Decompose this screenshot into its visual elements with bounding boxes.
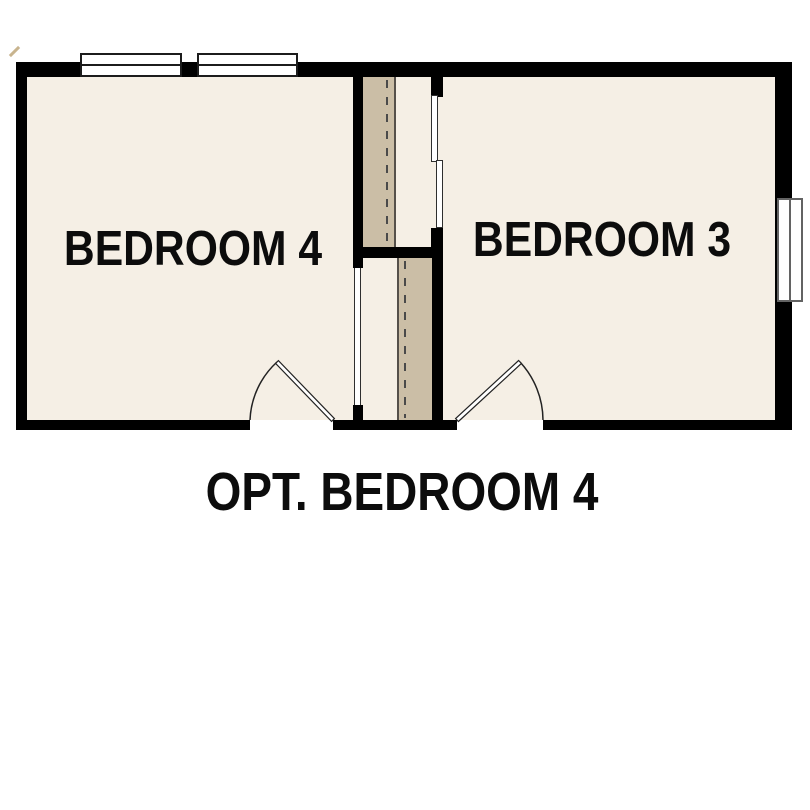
bedroom-4-door-leaf [276, 361, 335, 422]
caption-label: OPT. BEDROOM 4 [206, 461, 599, 523]
bedroom-3-door-leaf [456, 361, 522, 422]
bedroom-4-label: BEDROOM 4 [64, 221, 322, 277]
bedroom-3-door-swing-arc [520, 362, 543, 420]
bedroom-4-door-swing-arc [250, 362, 277, 420]
door-swing-layer [0, 0, 810, 810]
floor-plan: BEDROOM 4 BEDROOM 3 OPT. BEDROOM 4 [0, 0, 810, 810]
bedroom-3-label: BEDROOM 3 [473, 212, 731, 268]
